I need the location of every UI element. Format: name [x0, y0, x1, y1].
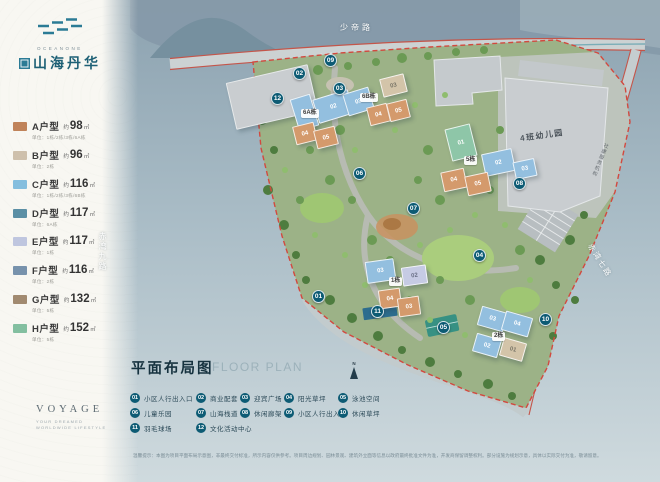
- legend-label: 休闲廊架: [254, 408, 282, 418]
- legend-item-12: 12文化活动中心: [196, 423, 252, 433]
- unit-label: C户型: [32, 177, 59, 191]
- legend-item-01: 01小区人行出入口: [130, 393, 193, 403]
- disclaimer-text: 温馨提示：本图为项目平面布局示意图，非最终交付标准，所示内容仅供参考。项目周边规…: [133, 453, 648, 459]
- building-label-6a: 6A栋: [301, 109, 319, 118]
- swatch-h: [13, 324, 27, 333]
- sidebar: OCEANONE 山海丹华 A户型约98㎡ 单位：1栋/2栋/3栋/6A栋 B户…: [0, 0, 138, 482]
- building-unit: 03: [397, 296, 421, 318]
- approx: 约: [63, 152, 69, 160]
- floorplan-title: 平面布局图: [131, 357, 214, 378]
- unit-type-a: A户型约98㎡ 单位：1栋/2栋/3栋/6A栋: [13, 119, 125, 141]
- unit-note: 单位：5栋: [32, 337, 125, 343]
- area-unit: ㎡: [89, 238, 95, 246]
- legend-num: 12: [196, 423, 206, 433]
- voyage-sub2: WORLDWIDE LIFESTYLE: [36, 425, 106, 431]
- legend-label: 阳光草坪: [298, 393, 326, 403]
- legend-label: 儿童乐园: [144, 408, 172, 418]
- map-marker-07: 07: [407, 202, 420, 215]
- legend-item-07: 07山海栈道: [196, 408, 238, 418]
- legend-num: 02: [196, 393, 206, 403]
- waves-logo-icon: [36, 18, 86, 38]
- map-marker-10: 10: [539, 313, 552, 326]
- brand-seal-icon: [19, 58, 30, 69]
- kindergarten-building: [505, 78, 608, 212]
- legend-item-11: 11羽毛球场: [130, 423, 172, 433]
- swatch-e: [13, 237, 27, 246]
- compass-icon: N: [347, 361, 361, 379]
- unit-type-g: G户型约132㎡ 单位：5栋: [13, 292, 125, 314]
- approx: 约: [63, 210, 69, 218]
- unit-note: 单位：6A栋: [32, 222, 125, 228]
- road-label-shaodi: 少帝路: [340, 22, 373, 33]
- voyage-subtitle: YOUR DREAMED WORLDWIDE LIFESTYLE: [36, 419, 106, 430]
- legend-num: 05: [338, 393, 348, 403]
- legend-label: 山海栈道: [210, 408, 238, 418]
- legend-label: 文化活动中心: [210, 423, 252, 433]
- unit-note: 单位：1栋/2栋/3栋/6A栋: [32, 135, 125, 141]
- north-arrow-icon: [350, 367, 358, 379]
- map-marker-04: 04: [473, 249, 486, 262]
- legend-item-04: 04阳光草坪: [284, 393, 326, 403]
- area: 117: [70, 207, 89, 219]
- building-unit: 02: [401, 264, 428, 286]
- unit-type-f: F户型约116㎡ 单位：2栋: [13, 263, 125, 285]
- lawn-3: [500, 287, 540, 313]
- map-marker-05: 05: [437, 321, 450, 334]
- unit-label: D户型: [32, 206, 59, 220]
- playground-inner: [383, 218, 401, 230]
- unit-note: 单位：5栋: [32, 308, 125, 314]
- area-unit: ㎡: [89, 181, 95, 189]
- swatch-f: [13, 266, 27, 275]
- legend-label: 羽毛球场: [144, 423, 172, 433]
- approx: 约: [62, 267, 68, 275]
- area: 98: [70, 120, 83, 132]
- approx: 约: [63, 181, 69, 189]
- approx: 约: [63, 238, 69, 246]
- legend-item-05: 05泳池空间: [338, 393, 380, 403]
- area: 116: [69, 264, 88, 276]
- map-marker-12: 12: [271, 92, 284, 105]
- brand-name-en: OCEANONE: [37, 46, 83, 51]
- floorplan-title-en: FLOOR PLAN: [212, 360, 303, 374]
- unit-label: G户型: [32, 292, 60, 306]
- unit-note: 单位：1栋/2栋/3栋/6B栋: [32, 193, 125, 199]
- map-marker-08: 08: [513, 177, 526, 190]
- area-unit: ㎡: [90, 325, 96, 333]
- legend-num: 01: [130, 393, 140, 403]
- area: 116: [70, 178, 89, 190]
- swatch-d: [13, 209, 27, 218]
- legend-label: 商业配套: [210, 393, 238, 403]
- map-marker-02: 02: [293, 67, 306, 80]
- unit-note: 单位：1栋: [32, 250, 125, 256]
- legend-item-02: 02商业配套: [196, 393, 238, 403]
- area-unit: ㎡: [91, 296, 97, 304]
- area: 152: [70, 322, 89, 334]
- area: 117: [69, 235, 88, 247]
- swatch-c: [13, 180, 27, 189]
- area: 96: [70, 149, 83, 161]
- map-marker-09: 09: [324, 54, 337, 67]
- area: 132: [70, 293, 89, 305]
- swatch-a: [13, 122, 27, 131]
- unit-note: 单位：2栋: [32, 279, 125, 285]
- unit-type-b: B户型约96㎡ 单位：2栋: [13, 148, 125, 170]
- compass-n-label: N: [347, 361, 361, 366]
- approx: 约: [63, 123, 69, 131]
- unit-type-d: D户型约117㎡ 单位：6A栋: [13, 206, 125, 228]
- swatch-b: [13, 151, 27, 160]
- unit-label: B户型: [32, 148, 59, 162]
- map-marker-11: 11: [371, 305, 384, 318]
- legend-num: 06: [130, 408, 140, 418]
- map-marker-01: 01: [312, 290, 325, 303]
- legend-label: 迎宾广场: [254, 393, 282, 403]
- legend-item-06: 06儿童乐园: [130, 408, 172, 418]
- building-label-6b: 6B栋: [360, 93, 378, 102]
- map-marker-03: 03: [333, 82, 346, 95]
- legend-num: 07: [196, 408, 206, 418]
- building-label-5: 5栋: [464, 156, 477, 165]
- building-label-1: 1栋: [389, 277, 402, 286]
- unit-type-h: H户型约152㎡ 单位：5栋: [13, 321, 125, 343]
- legend-num: 11: [130, 423, 140, 433]
- unit-note: 单位：2栋: [32, 164, 125, 170]
- voyage-block: VOYAGE YOUR DREAMED WORLDWIDE LIFESTYLE: [36, 404, 106, 430]
- legend-item-10: 10休闲草坪: [338, 408, 380, 418]
- lawn-2: [300, 193, 344, 223]
- legend-item-03: 03迎宾广场: [240, 393, 282, 403]
- legend-label: 休闲草坪: [352, 408, 380, 418]
- approx: 约: [63, 325, 69, 333]
- swatch-g: [13, 295, 27, 304]
- unit-type-c: C户型约116㎡ 单位：1栋/2栋/3栋/6B栋: [13, 177, 125, 199]
- area-unit: ㎡: [89, 210, 95, 218]
- legend-label: 小区人行出入口: [144, 393, 193, 403]
- legend-label: 泳池空间: [352, 393, 380, 403]
- unit-type-e: E户型约117㎡ 单位：1栋: [13, 234, 125, 256]
- road-label-chiwan9: 赤湾九路: [97, 232, 108, 272]
- legend-num: 03: [240, 393, 250, 403]
- unit-label: H户型: [32, 321, 59, 335]
- unit-label: A户型: [32, 119, 59, 133]
- brand-name-cn: 山海丹华: [33, 53, 101, 73]
- map-marker-06: 06: [353, 167, 366, 180]
- legend-num: 09: [284, 408, 294, 418]
- approx: 约: [64, 296, 70, 304]
- area-unit: ㎡: [84, 123, 90, 131]
- brand-row: 山海丹华: [19, 53, 101, 73]
- area-unit: ㎡: [84, 152, 90, 160]
- legend-item-08: 08休闲廊架: [240, 408, 282, 418]
- area-unit: ㎡: [88, 267, 94, 275]
- building-label-2: 2栋: [492, 332, 505, 341]
- legend-num: 04: [284, 393, 294, 403]
- unit-label: F户型: [32, 263, 58, 277]
- legend-num: 08: [240, 408, 250, 418]
- site-plan-page: 01 02 03 03 04 05 04 05 01 02 03 04 05 0…: [0, 0, 660, 482]
- unit-label: E户型: [32, 234, 59, 248]
- legend-num: 10: [338, 408, 348, 418]
- voyage-title: VOYAGE: [36, 404, 106, 415]
